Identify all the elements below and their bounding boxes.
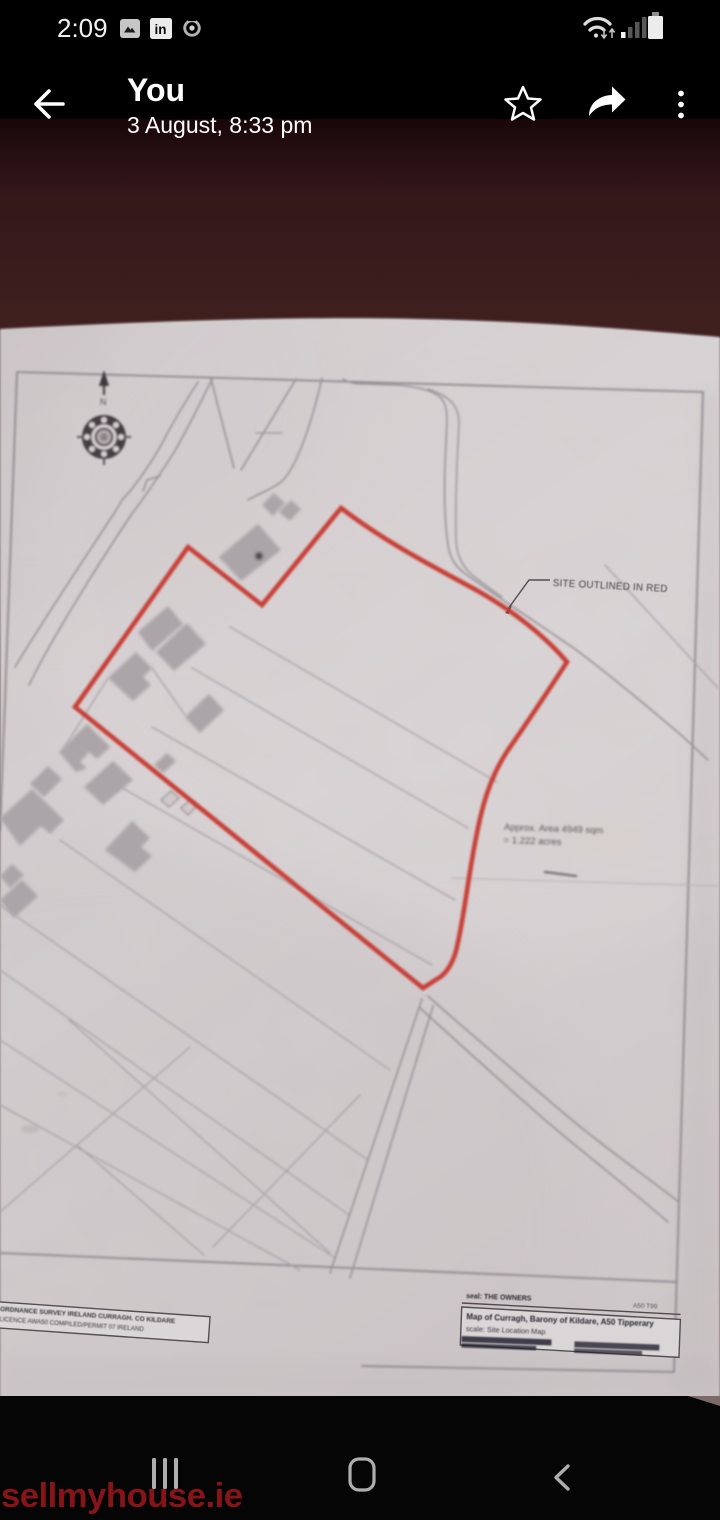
svg-text:= 1.222 acres: = 1.222 acres [503,835,561,848]
svg-text:A50 T99: A50 T99 [633,1303,658,1311]
svg-text:N: N [100,397,107,407]
svg-text:in: in [155,22,167,37]
